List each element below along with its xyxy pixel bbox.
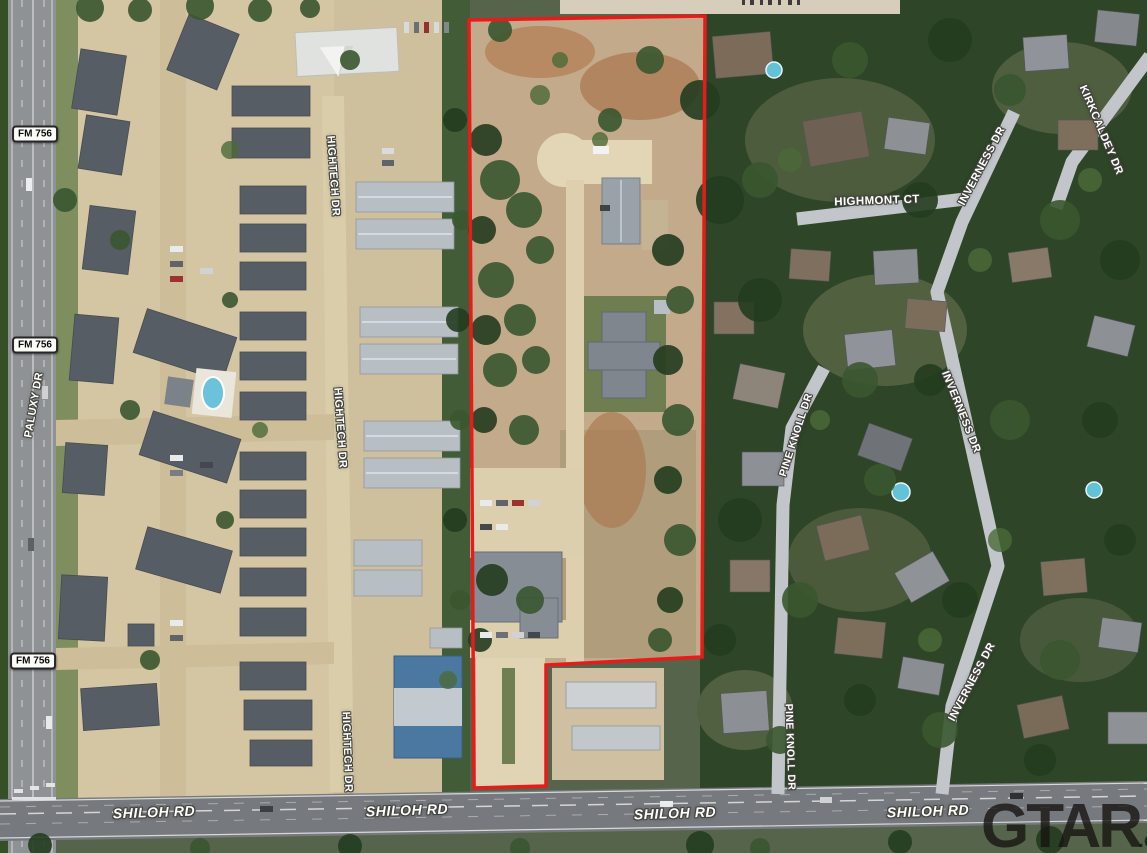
storage-units bbox=[552, 668, 664, 780]
top-street-strip bbox=[560, 0, 900, 14]
top-cutoff-label-fragment bbox=[742, 0, 800, 5]
aerial-map-canvas bbox=[0, 0, 1147, 853]
blue-metal-building bbox=[394, 656, 462, 758]
north-parking-lot bbox=[470, 468, 584, 558]
aerial-parcel-map: FM 756FM 756FM 756 PALUXY DRHIGHTECH DRH… bbox=[0, 0, 1147, 853]
